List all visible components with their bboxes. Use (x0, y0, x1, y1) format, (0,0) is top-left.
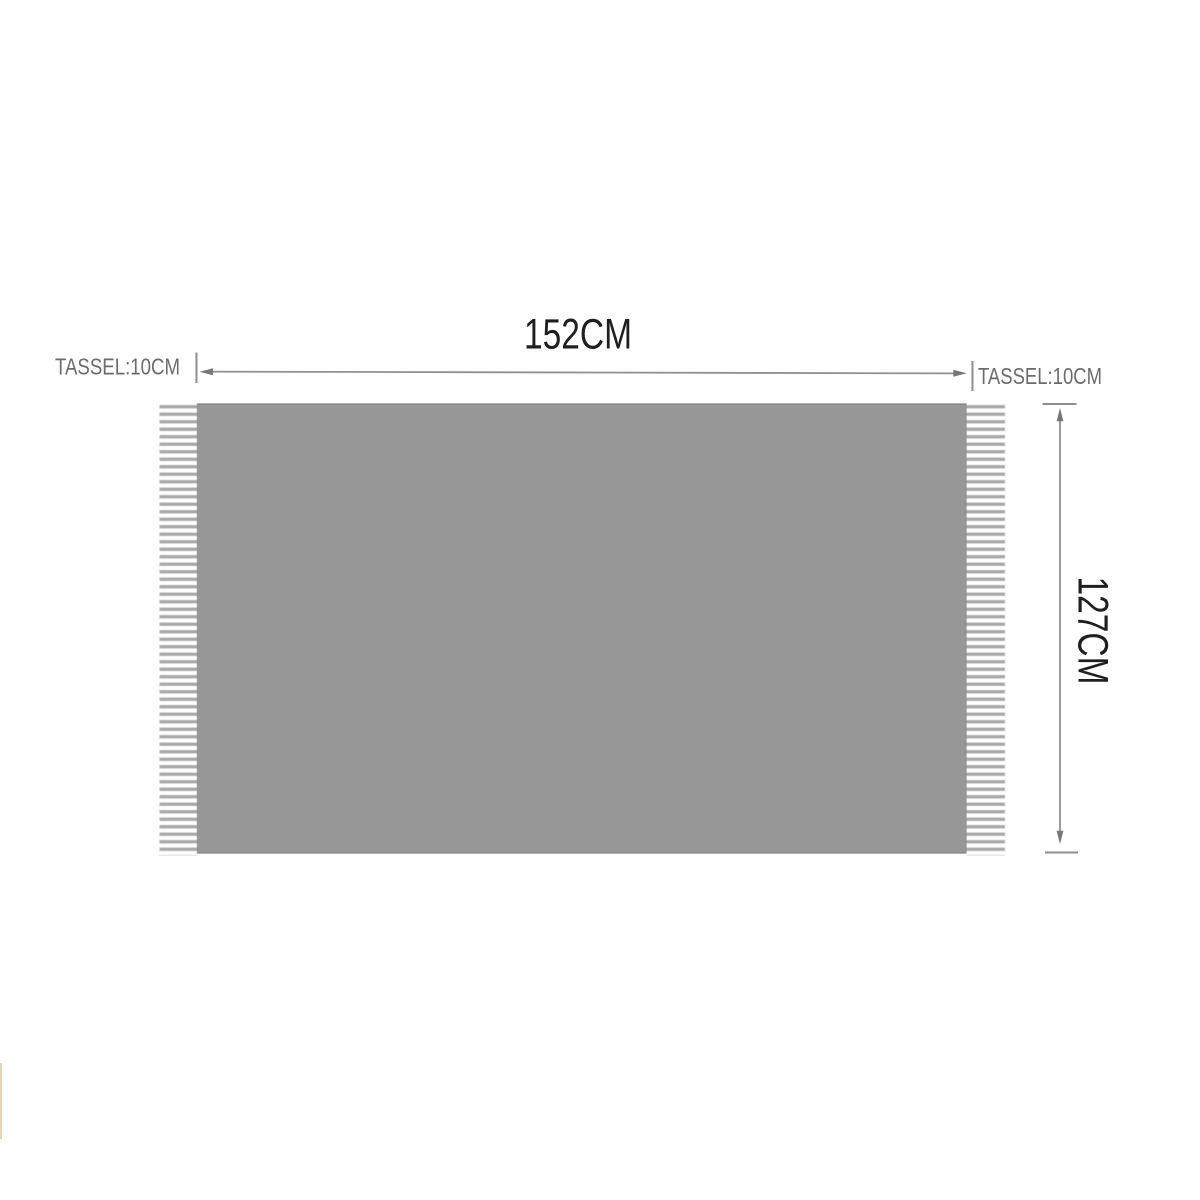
svg-text:152CM: 152CM (524, 312, 632, 359)
svg-text:TASSEL:10CM: TASSEL:10CM (55, 354, 180, 380)
svg-text:TASSEL:10CM: TASSEL:10CM (978, 363, 1102, 389)
svg-text:127CM: 127CM (1069, 577, 1116, 685)
